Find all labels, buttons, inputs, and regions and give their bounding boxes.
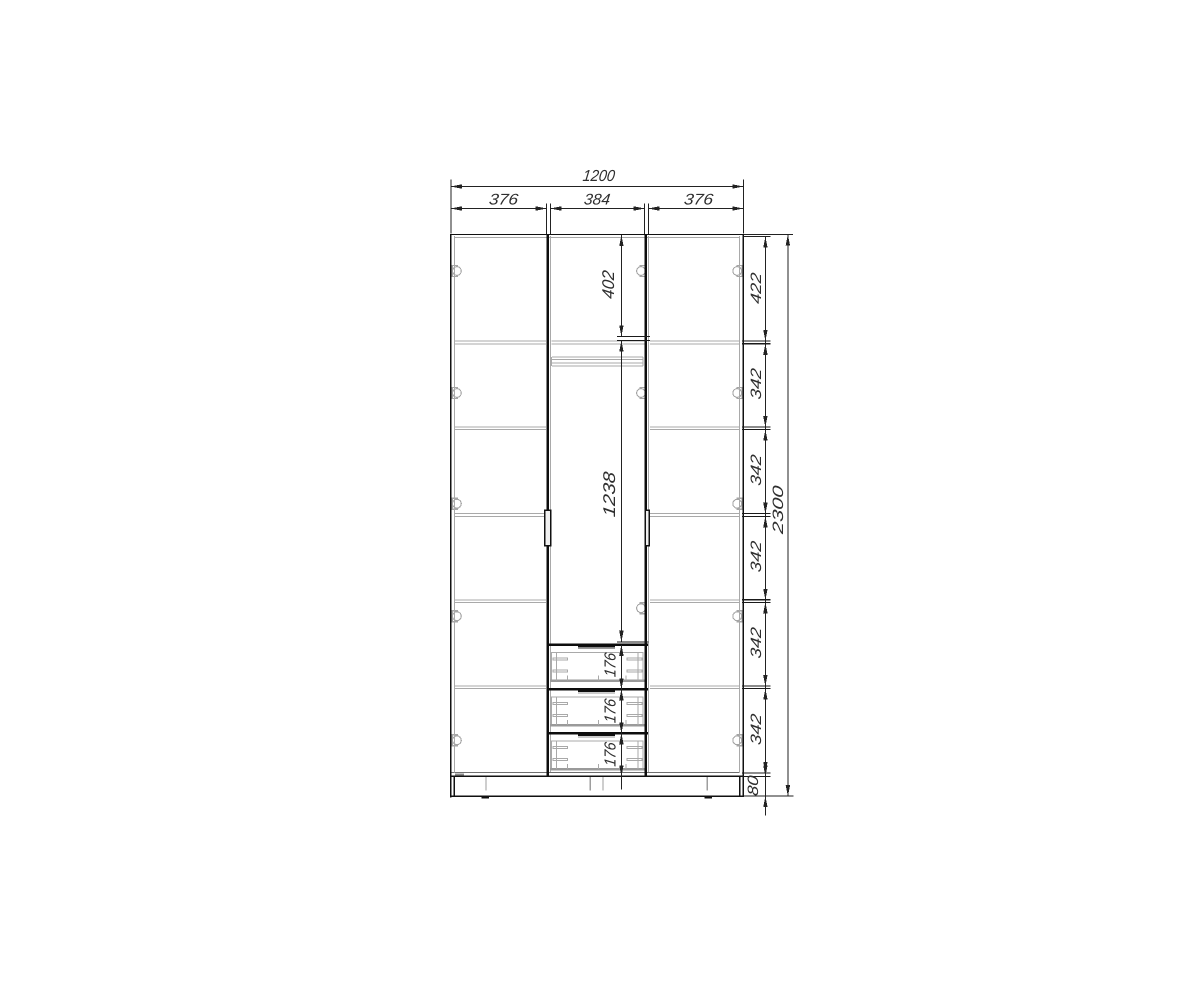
svg-text:422: 422 [748,271,765,305]
svg-text:1238: 1238 [600,470,619,518]
svg-text:2300: 2300 [770,484,787,536]
svg-text:342: 342 [748,712,765,746]
svg-text:176: 176 [601,698,619,724]
svg-text:342: 342 [748,626,765,660]
svg-text:402: 402 [599,269,618,300]
svg-text:176: 176 [601,741,619,767]
svg-text:176: 176 [601,652,619,678]
svg-text:342: 342 [748,453,765,487]
svg-text:1200: 1200 [582,167,616,185]
svg-text:384: 384 [583,192,611,209]
svg-text:376: 376 [683,192,714,209]
svg-text:342: 342 [748,539,765,573]
svg-text:376: 376 [488,192,519,209]
svg-text:80: 80 [745,774,762,797]
svg-text:342: 342 [748,367,765,401]
